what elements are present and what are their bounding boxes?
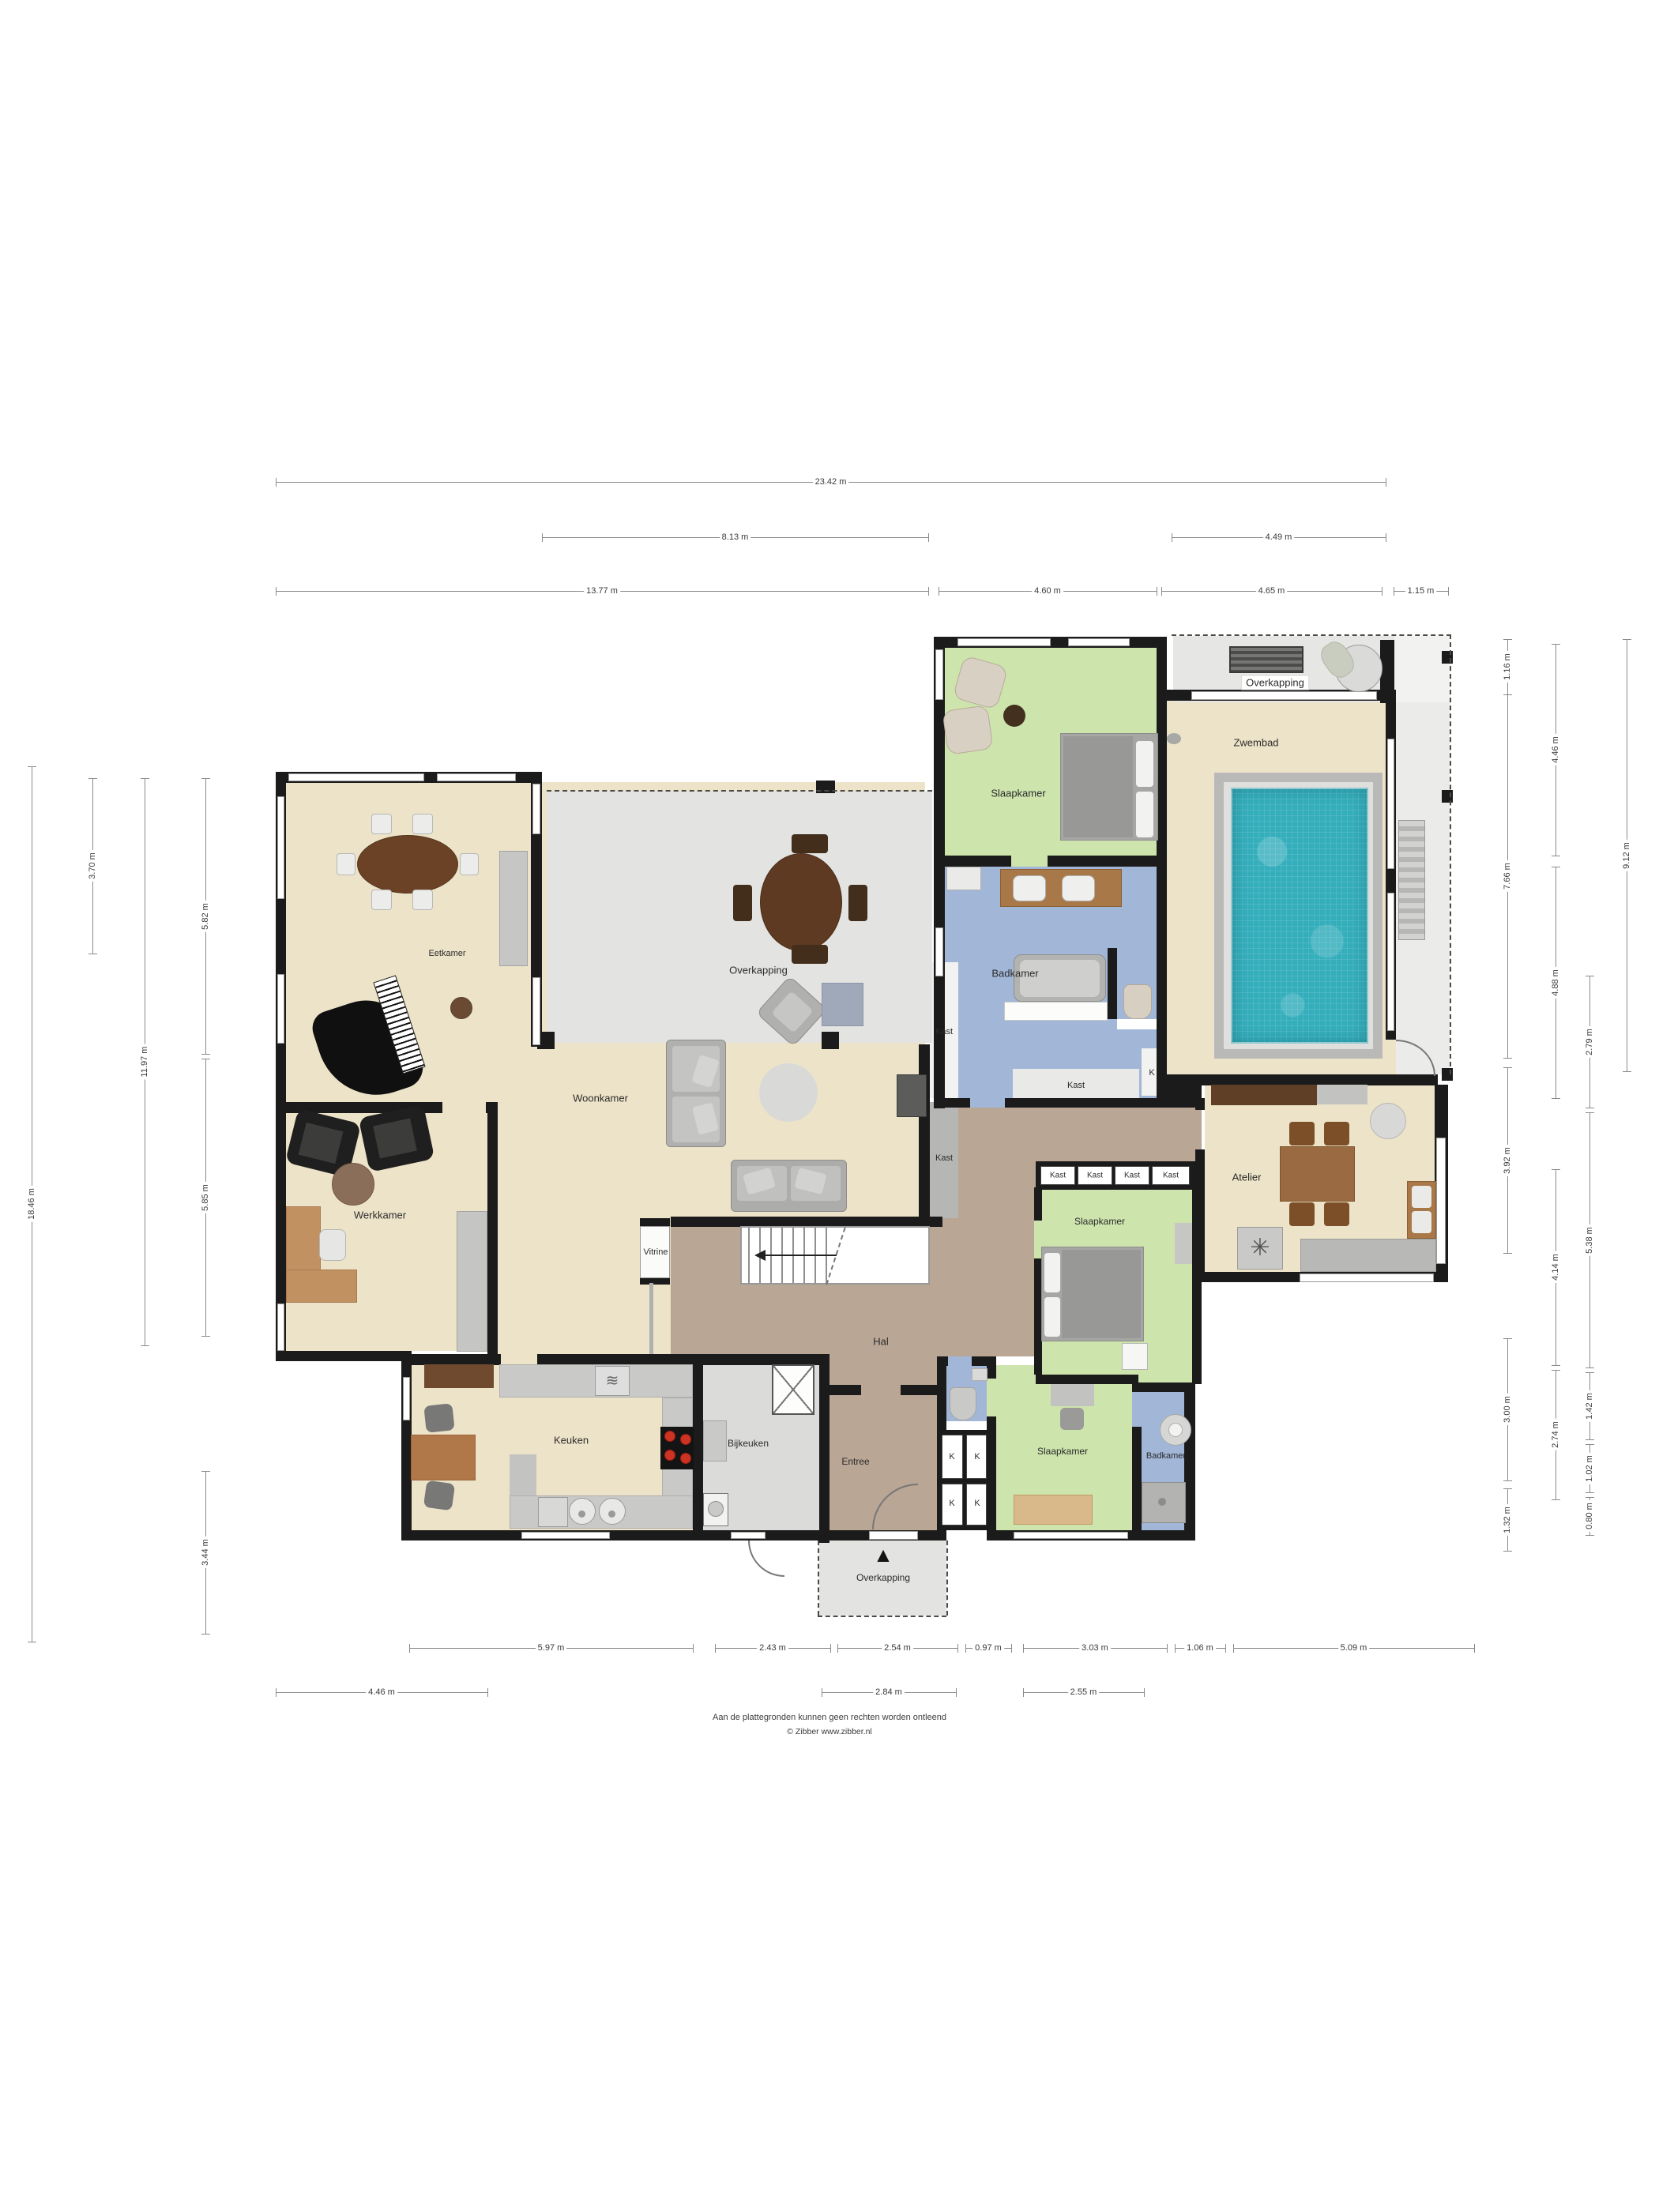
dim-tick [1023, 1688, 1024, 1697]
wall [1184, 1382, 1195, 1540]
kitchen-counter [510, 1454, 536, 1495]
dim-tick [201, 1059, 210, 1059]
pool-water [1231, 788, 1368, 1044]
toilet [950, 1387, 976, 1420]
dim-tick [822, 1688, 822, 1697]
badkamer-nook-strip [1117, 1019, 1157, 1029]
dim-tick [1503, 1488, 1512, 1489]
burner [664, 1431, 675, 1442]
window [869, 1531, 918, 1540]
shaft [772, 1364, 814, 1415]
room-label: Slaapkamer [991, 788, 1045, 799]
lounger [1398, 820, 1425, 940]
dim-tick [1225, 1644, 1226, 1653]
window [277, 974, 284, 1044]
lounge-chair [942, 705, 993, 755]
shower-drain [1158, 1498, 1166, 1506]
door-opening [970, 1098, 1005, 1108]
kitchen-sideboard [424, 1364, 494, 1388]
dim-tick [928, 587, 929, 596]
window [1436, 1138, 1446, 1264]
dimension-value: 2.79 m [1585, 1026, 1594, 1058]
dim-tick [1474, 1644, 1475, 1653]
dim-tick [1586, 1112, 1594, 1113]
footer-copyright: © Zibber www.zibber.nl [0, 1727, 1659, 1736]
dining-chair [337, 853, 355, 875]
wall [945, 856, 1157, 867]
terrace-dashed-edge [1172, 634, 1451, 636]
wall [401, 1354, 829, 1365]
window [935, 649, 943, 700]
terrace-dashed-edge [818, 1540, 819, 1616]
dim-tick [276, 587, 276, 596]
dim-tick [1552, 856, 1560, 856]
dimension-value: 4.88 m [1551, 967, 1560, 999]
dim-tick [1172, 533, 1172, 542]
window [1300, 1273, 1434, 1282]
dimension-value: 8.13 m [720, 532, 751, 542]
wall [901, 1385, 937, 1395]
atelier-counter [1300, 1239, 1436, 1272]
bed-pillow [1044, 1253, 1060, 1292]
wardrobe [457, 1211, 487, 1352]
dimension-value: 0.80 m [1585, 1500, 1594, 1532]
room-label: Kast [1087, 1172, 1103, 1180]
window [532, 977, 540, 1045]
sink-drain [608, 1510, 615, 1518]
dining-chair [412, 890, 433, 910]
dim-tick [1503, 1338, 1512, 1339]
desk [1014, 1495, 1093, 1525]
dim-tick [1394, 587, 1394, 596]
dim-tick [276, 478, 276, 487]
dimension-value: 4.60 m [1032, 586, 1063, 596]
dim-tick [201, 1634, 210, 1635]
dim-tick [837, 1644, 838, 1653]
window [935, 927, 943, 976]
dim-tick [1011, 1644, 1012, 1653]
room-label: Overkapping [1241, 675, 1309, 690]
dimension-value: 13.77 m [584, 586, 620, 596]
burner [680, 1434, 691, 1445]
piano-stool [450, 997, 472, 1019]
heat-pump-icon: ✳ [1237, 1227, 1283, 1270]
basin [1062, 875, 1095, 901]
dim-tick [88, 778, 97, 779]
room-label: Vitrine [644, 1247, 668, 1257]
dim-tick [1503, 1058, 1512, 1059]
dimension-value: 4.49 m [1263, 532, 1295, 542]
desk-chair [319, 1229, 346, 1261]
dimension-value: 3.92 m [1503, 1145, 1512, 1176]
bed-pillow [1136, 741, 1153, 787]
terrace-chair [733, 885, 752, 921]
dim-tick [1503, 1480, 1512, 1481]
room-label: Bijkeuken [728, 1438, 769, 1449]
dim-tick [1552, 1499, 1560, 1500]
window [957, 638, 1051, 646]
desk [1051, 1384, 1094, 1406]
dimension-value: 18.46 m [27, 1186, 36, 1222]
room-label: Kast [1124, 1172, 1140, 1180]
dim-tick [28, 766, 36, 767]
dim-tick [201, 1054, 210, 1055]
kitchen-chair [423, 1403, 454, 1433]
wall [934, 637, 945, 1108]
dim-tick [141, 1345, 149, 1346]
window [277, 1303, 284, 1351]
room-label: Kast [1067, 1081, 1085, 1090]
dim-tick [276, 1688, 276, 1697]
atelier-chair [1289, 1122, 1315, 1145]
door-opening [1132, 1392, 1142, 1427]
dining-chair [371, 814, 392, 834]
atelier-counter [1317, 1085, 1367, 1104]
terrace-chair [848, 885, 867, 921]
bed-pillow [1136, 792, 1153, 837]
dimension-value: 1.02 m [1585, 1453, 1594, 1484]
terrace-dashed-edge [818, 1616, 946, 1617]
washer-door [708, 1501, 724, 1517]
stair-direction-line [764, 1255, 837, 1256]
door-opening [861, 1385, 901, 1395]
wall [919, 1044, 930, 1226]
floorplan-canvas: ≋✳▲SlaapkamerZwembadOverkappingBadkamerK… [0, 0, 1659, 2212]
dim-tick [830, 1644, 831, 1653]
bed-pillow [1044, 1297, 1060, 1337]
dimension-value: 2.74 m [1551, 1419, 1560, 1450]
sideboard [499, 851, 528, 966]
wall [640, 1218, 670, 1226]
dim-tick [1161, 587, 1162, 596]
dim-tick [1586, 1372, 1594, 1373]
dimension-value: 5.82 m [201, 901, 210, 932]
room-label: Hal [873, 1336, 889, 1348]
terrace-table [760, 853, 842, 951]
dimension-value: 7.66 m [1503, 860, 1512, 892]
dimension-value: 4.46 m [366, 1687, 397, 1697]
dim-tick [1503, 639, 1512, 640]
dimension-value: 4.14 m [1551, 1251, 1560, 1283]
stair-direction-arrow-icon [754, 1250, 766, 1261]
door-opening [987, 1379, 996, 1416]
wall [276, 1351, 412, 1361]
dim-tick [1552, 1098, 1560, 1099]
wall [693, 1364, 703, 1540]
dim-tick [1167, 1644, 1168, 1653]
dim-tick [693, 1644, 694, 1653]
dimension-value: 0.97 m [972, 1643, 1004, 1653]
dim-tick [1448, 587, 1449, 596]
room-label: Overkapping [729, 965, 788, 976]
dining-chair [460, 853, 479, 875]
dim-tick [1552, 1365, 1560, 1366]
room-label: Slaapkamer [1074, 1216, 1125, 1227]
room-label: Badkamer [991, 968, 1038, 980]
atelier-chair [1324, 1122, 1349, 1145]
dim-tick [1586, 1108, 1594, 1108]
dim-tick [1586, 1439, 1594, 1440]
basin [1412, 1186, 1431, 1208]
footer-disclaimer: Aan de plattegronden kunnen geen rechten… [0, 1713, 1659, 1722]
window [1191, 691, 1377, 700]
door-opening [1386, 1040, 1396, 1074]
bed-mattress [1062, 1250, 1141, 1338]
dim-tick [1623, 1071, 1631, 1072]
dimension-value: 1.42 m [1585, 1390, 1594, 1422]
terrace-dashed-edge [1450, 634, 1451, 1074]
window [1014, 1532, 1128, 1539]
pool-shower [1167, 733, 1181, 744]
dim-tick [1586, 1367, 1594, 1368]
window [437, 773, 516, 781]
dimension-value: 2.55 m [1068, 1687, 1100, 1697]
room-label: K [974, 1452, 980, 1461]
room-label: Atelier [1232, 1172, 1262, 1183]
cabinet [703, 1420, 727, 1461]
room-label: Kast [935, 1153, 953, 1163]
terrace-chair [792, 945, 828, 964]
burner [664, 1450, 675, 1461]
dim-tick [1386, 533, 1386, 542]
wall [1132, 1382, 1195, 1392]
dimension-value: 3.00 m [1503, 1394, 1512, 1425]
dimension-value: 1.15 m [1405, 586, 1437, 596]
wall [822, 1032, 839, 1049]
dimension-value: 4.65 m [1256, 586, 1288, 596]
glass-wall [649, 1283, 653, 1354]
ceiling-light [1370, 1103, 1406, 1139]
door-opening [948, 1356, 972, 1366]
bench [1229, 646, 1303, 673]
dim-tick [715, 1644, 716, 1653]
desk-chair [1060, 1408, 1084, 1430]
dim-tick [1386, 478, 1386, 487]
overkapping-tr-white [1394, 636, 1450, 702]
dim-tick [1382, 587, 1382, 596]
window [1387, 893, 1394, 1031]
side-table [1003, 705, 1025, 727]
dining-chair [371, 890, 392, 910]
dim-tick [1023, 1644, 1024, 1653]
basin [972, 1368, 987, 1381]
dim-tick [965, 1644, 966, 1653]
bed-mattress [1063, 736, 1133, 837]
window [1387, 739, 1394, 869]
dimension-value: 5.97 m [536, 1643, 567, 1653]
dim-tick [1586, 976, 1594, 976]
dim-tick [1586, 1492, 1594, 1493]
dim-tick [141, 778, 149, 779]
dining-table [357, 835, 458, 893]
dim-tick [939, 587, 939, 596]
room-label: K [974, 1499, 980, 1508]
dim-tick [1233, 1644, 1234, 1653]
room-label: Keuken [554, 1435, 589, 1446]
room-label: Kast [1050, 1172, 1066, 1180]
toilet [1123, 984, 1152, 1019]
room-label: Kast [935, 1027, 953, 1036]
dimension-value: 1.32 m [1503, 1504, 1512, 1536]
north-arrow: ▲ [866, 1542, 901, 1567]
room-label: Overkapping [856, 1572, 910, 1583]
dim-tick [1503, 1067, 1512, 1068]
room-label: K [1149, 1068, 1154, 1078]
dimension-value: 3.03 m [1079, 1643, 1111, 1653]
room-label: Badkamer [1146, 1451, 1186, 1461]
dimension-value: 1.16 m [1503, 651, 1512, 683]
burner [680, 1453, 691, 1464]
wall [1108, 948, 1117, 1019]
door-opening [1011, 856, 1048, 867]
dim-tick [1503, 1551, 1512, 1552]
dim-tick [487, 1688, 488, 1697]
atelier-sideboard [1211, 1085, 1317, 1105]
dim-tick [201, 1336, 210, 1337]
room-label: Werkkamer [354, 1209, 406, 1221]
dimension-value: 5.09 m [1338, 1643, 1370, 1653]
dimension-value: 3.44 m [201, 1537, 210, 1568]
dim-tick [1552, 1370, 1560, 1371]
window [731, 1532, 766, 1539]
room-label: Kast [1163, 1172, 1179, 1180]
terrace-dashed-edge [946, 1540, 948, 1616]
dimension-value: 5.38 m [1585, 1224, 1594, 1256]
room-label: Eetkamer [428, 949, 465, 958]
dim-tick [1552, 867, 1560, 867]
window [532, 784, 540, 834]
dimension-value: 3.70 m [88, 850, 97, 882]
room-label: Slaapkamer [1037, 1446, 1088, 1457]
basin [1412, 1211, 1431, 1233]
terrace-dashed-edge [547, 790, 932, 792]
terrace-chair [792, 834, 828, 853]
atelier-chair [1324, 1202, 1349, 1226]
window [277, 796, 284, 899]
fireplace [897, 1074, 927, 1117]
dim-tick [1503, 694, 1512, 695]
room-label: Entree [841, 1456, 869, 1467]
rug [759, 1063, 818, 1122]
dim-tick [1586, 1535, 1594, 1536]
dimension-value: 2.54 m [882, 1643, 913, 1653]
dim-tick [1586, 1444, 1594, 1445]
atelier-chair [1289, 1202, 1315, 1226]
cabinet [946, 867, 981, 890]
dim-tick [28, 1642, 36, 1642]
dimension-value: 1.06 m [1184, 1643, 1216, 1653]
wall [487, 1102, 498, 1361]
dim-tick [1552, 1169, 1560, 1170]
kitchen-table [411, 1435, 476, 1480]
desk [286, 1270, 357, 1303]
wall [1157, 637, 1167, 1085]
room-label: Woonkamer [573, 1093, 628, 1104]
side-table [332, 1163, 374, 1206]
dimension-value: 5.85 m [201, 1182, 210, 1213]
dim-tick [1586, 1497, 1594, 1498]
dim-tick [957, 1644, 958, 1653]
dimension-value: 2.84 m [873, 1687, 905, 1697]
dim-tick [88, 954, 97, 954]
wall [1036, 1375, 1138, 1384]
dishwasher [538, 1497, 568, 1527]
staircase [740, 1226, 930, 1285]
window [403, 1377, 410, 1420]
room-label: K [949, 1452, 954, 1461]
dimension-value: 2.43 m [757, 1643, 788, 1653]
gray-mat [822, 983, 863, 1026]
oven-icon: ≋ [595, 1366, 630, 1396]
dim-tick [1175, 1644, 1176, 1653]
wall [1157, 1084, 1202, 1106]
door-opening [501, 1354, 537, 1365]
hal-floor-b [940, 1104, 1202, 1168]
kitchen-chair [423, 1480, 455, 1511]
dimension-value: 9.12 m [1622, 840, 1631, 871]
door-swing-arc [748, 1540, 784, 1577]
room-label: K [949, 1499, 954, 1508]
sink-drain [578, 1510, 585, 1518]
dim-tick [1552, 644, 1560, 645]
window [1068, 638, 1130, 646]
basin [1013, 875, 1046, 901]
dim-tick [201, 778, 210, 779]
dimension-value: 11.97 m [140, 1044, 149, 1080]
dim-tick [542, 533, 543, 542]
room-label: Zwembad [1233, 737, 1278, 749]
wall [819, 1385, 861, 1395]
tub-ledge [1004, 1002, 1108, 1021]
dim-tick [1503, 1253, 1512, 1254]
dim-tick [1623, 639, 1631, 640]
dim-tick [1144, 1688, 1145, 1697]
window [288, 773, 424, 781]
dim-tick [956, 1688, 957, 1697]
dimension-value: 4.46 m [1551, 734, 1560, 766]
dim-tick [201, 1471, 210, 1472]
basin [1168, 1423, 1183, 1437]
nightstand [1122, 1343, 1148, 1370]
dim-tick [1157, 587, 1157, 596]
dining-chair [412, 814, 433, 834]
door-opening [442, 1102, 486, 1113]
atelier-table [1280, 1146, 1355, 1202]
dim-tick [928, 533, 929, 542]
dim-tick [409, 1644, 410, 1653]
window [521, 1532, 610, 1539]
dimension-value: 23.42 m [813, 477, 849, 487]
door-panel [1175, 1223, 1192, 1264]
